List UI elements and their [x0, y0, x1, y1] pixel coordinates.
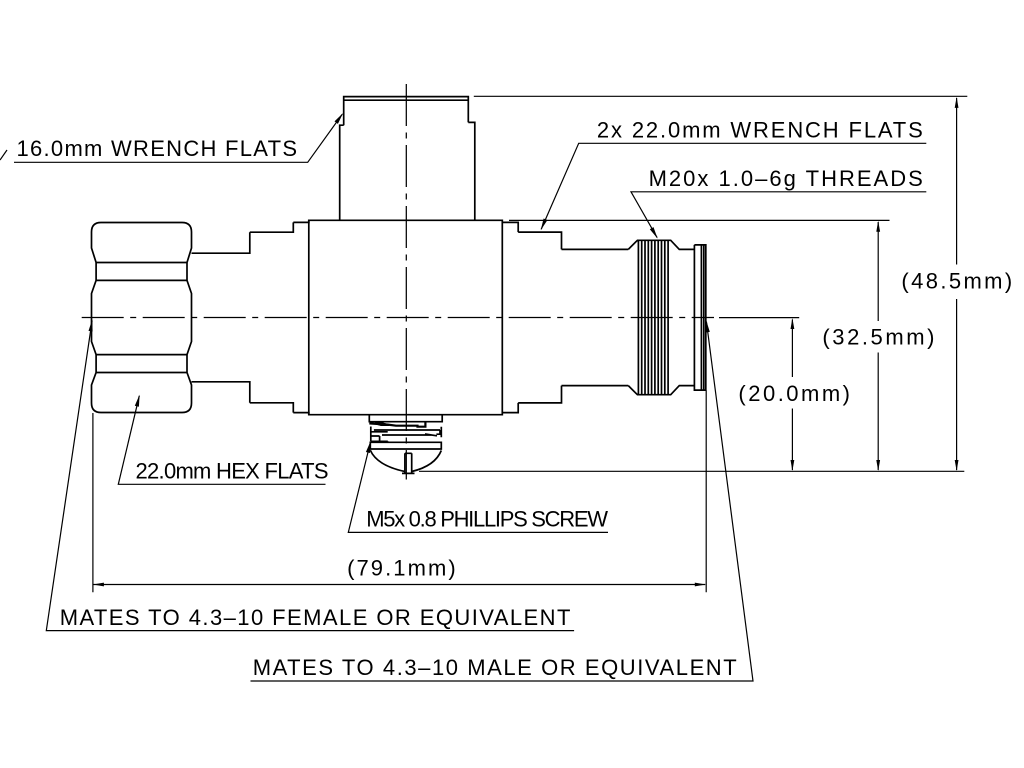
svg-text:(79.1mm): (79.1mm) — [347, 556, 456, 581]
svg-text:(20.0mm): (20.0mm) — [738, 381, 850, 406]
svg-text:MATES TO 4.3–10 FEMALE OR EQUI: MATES TO 4.3–10 FEMALE OR EQUIVALENT — [60, 605, 571, 630]
svg-text:2x 22.0mm WRENCH FLATS: 2x 22.0mm WRENCH FLATS — [597, 117, 923, 142]
svg-text:M5x 0.8 PHILLIPS SCREW: M5x 0.8 PHILLIPS SCREW — [366, 507, 608, 532]
svg-text:(48.5mm): (48.5mm) — [901, 268, 1012, 293]
svg-text:22.0mm HEX FLATS: 22.0mm HEX FLATS — [136, 459, 329, 484]
svg-text:M20x 1.0–6g THREADS: M20x 1.0–6g THREADS — [649, 166, 923, 191]
svg-text:(32.5mm): (32.5mm) — [822, 325, 934, 350]
svg-text:MATES TO 4.3–10 MALE OR EQUIVA: MATES TO 4.3–10 MALE OR EQUIVALENT — [253, 655, 737, 680]
svg-text:16.0mm WRENCH FLATS: 16.0mm WRENCH FLATS — [17, 136, 298, 161]
